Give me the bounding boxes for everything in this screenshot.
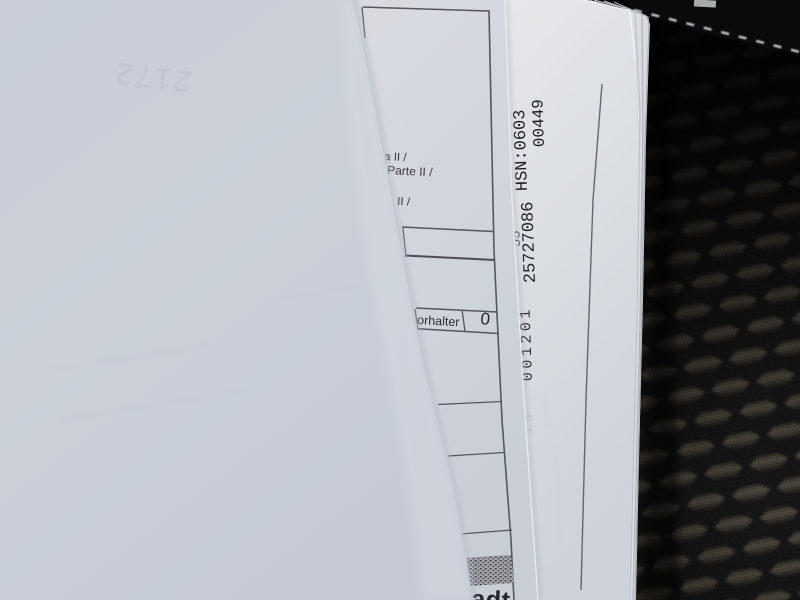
svg-text:Parte II /: Parte II / xyxy=(387,163,434,179)
svg-text:orhalter: orhalter xyxy=(417,313,460,329)
svg-text:00449: 00449 xyxy=(529,99,549,148)
svg-text:(uuo ʇɯɐsbun: (uuo ʇɯɐsbun xyxy=(541,391,554,453)
svg-text:II /: II / xyxy=(397,196,411,209)
svg-text:adt: adt xyxy=(471,585,512,600)
svg-text:0: 0 xyxy=(480,309,491,329)
